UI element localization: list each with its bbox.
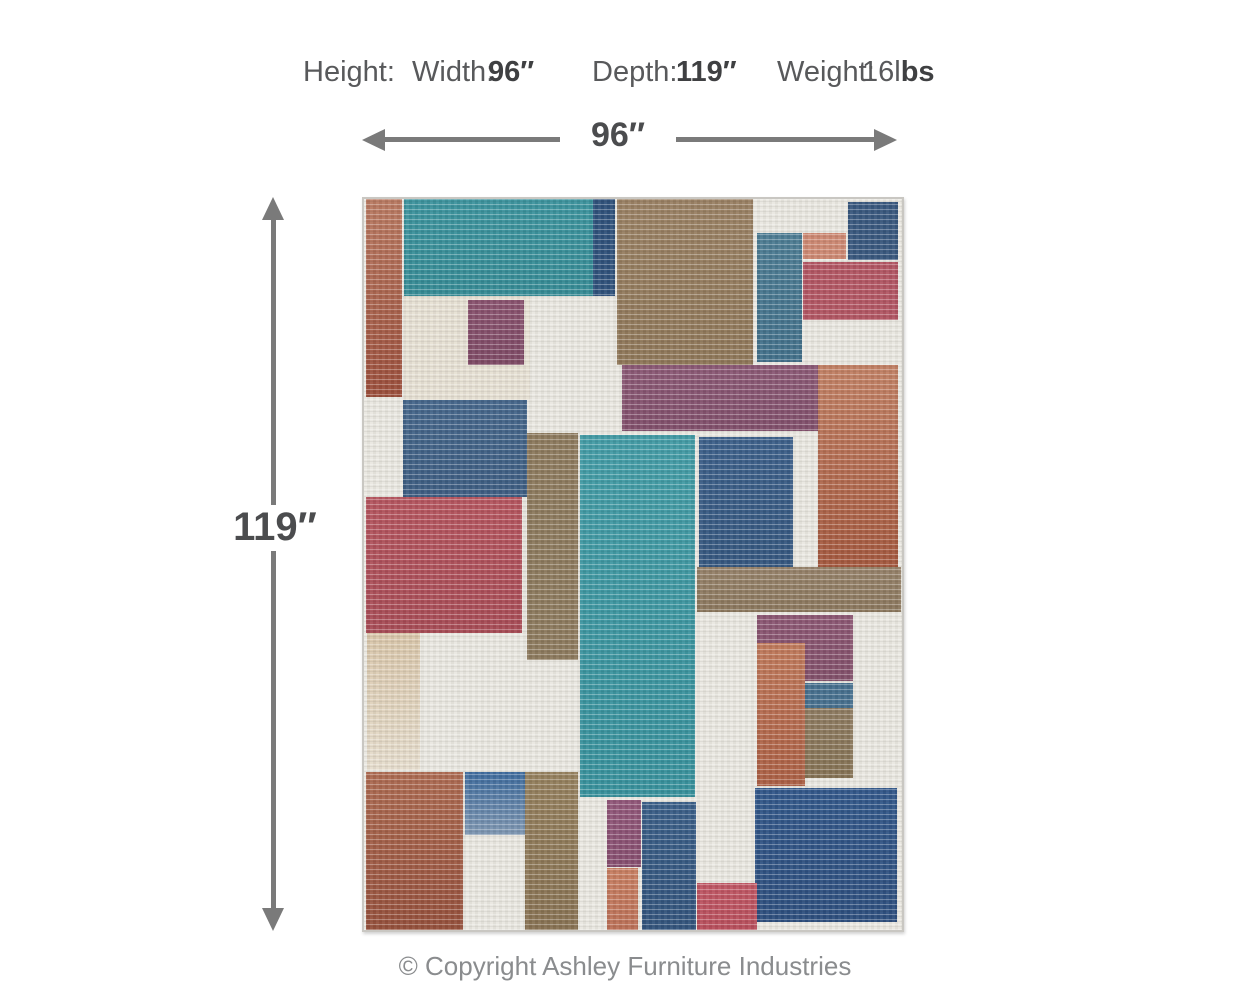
patch-terracotta-tall bbox=[818, 365, 898, 567]
patch-plum-wide bbox=[622, 365, 818, 431]
patch-plum-inset bbox=[468, 300, 524, 365]
width-label: Width: bbox=[412, 57, 494, 89]
patch-salmon-top-right bbox=[803, 233, 846, 259]
patch-plum-small bbox=[607, 800, 641, 867]
patch-rust-strip-left bbox=[366, 199, 402, 397]
patch-navy-center bbox=[699, 437, 793, 567]
patch-navy-tall bbox=[642, 802, 696, 930]
width-arrow-value: 96″ bbox=[560, 116, 676, 155]
width-line-left bbox=[384, 137, 560, 142]
patch-teal-top bbox=[404, 199, 593, 296]
patch-crimson-bottom bbox=[697, 883, 757, 930]
arrowhead-down-icon bbox=[262, 908, 284, 931]
width-line-right bbox=[676, 137, 874, 142]
patch-rust-bottom-left bbox=[366, 772, 463, 930]
arrowhead-right-icon bbox=[874, 129, 897, 151]
patch-tan-big bbox=[617, 199, 753, 365]
patch-navy-top-right bbox=[848, 202, 898, 260]
rug-canvas bbox=[362, 197, 904, 932]
patch-taupe-strip-b bbox=[525, 772, 578, 930]
patch-navy-strip-top bbox=[593, 199, 615, 296]
patch-taupe-small-mid bbox=[805, 708, 853, 778]
weight-label: Weight: bbox=[777, 57, 875, 89]
depth-label: Depth: bbox=[592, 57, 677, 89]
patch-bluegray-strip bbox=[757, 233, 802, 362]
width-value: 96″ bbox=[488, 57, 534, 89]
copyright-text: © Copyright Ashley Furniture Industries bbox=[0, 951, 1250, 982]
patch-taupe-strip-a bbox=[527, 433, 578, 660]
weight-value: 16lbs bbox=[862, 57, 935, 89]
patch-crimson-top-right bbox=[803, 262, 898, 320]
arrowhead-left-icon bbox=[362, 129, 385, 151]
patch-navy-bottom-right bbox=[755, 788, 897, 922]
weight-value-regular: 16l bbox=[862, 56, 901, 88]
patch-tan-band bbox=[697, 567, 901, 612]
patch-teal-central bbox=[580, 435, 695, 797]
patch-salmon-small bbox=[607, 868, 638, 930]
height-line-bottom bbox=[271, 551, 276, 908]
patch-blue-bottom-left bbox=[465, 772, 525, 835]
patch-steelblue-left bbox=[403, 400, 527, 497]
patch-crimson-left bbox=[366, 497, 522, 633]
weight-value-bold: bs bbox=[901, 56, 935, 88]
patch-blue-small-mid bbox=[805, 683, 853, 708]
depth-value: 119″ bbox=[676, 57, 737, 89]
height-line-top bbox=[271, 219, 276, 505]
patch-beige-strip bbox=[367, 633, 420, 770]
height-label: Height: bbox=[303, 57, 395, 89]
height-arrow-value: 119″ bbox=[223, 505, 327, 550]
patch-terracotta-col bbox=[757, 643, 805, 786]
arrowhead-up-icon bbox=[262, 197, 284, 220]
